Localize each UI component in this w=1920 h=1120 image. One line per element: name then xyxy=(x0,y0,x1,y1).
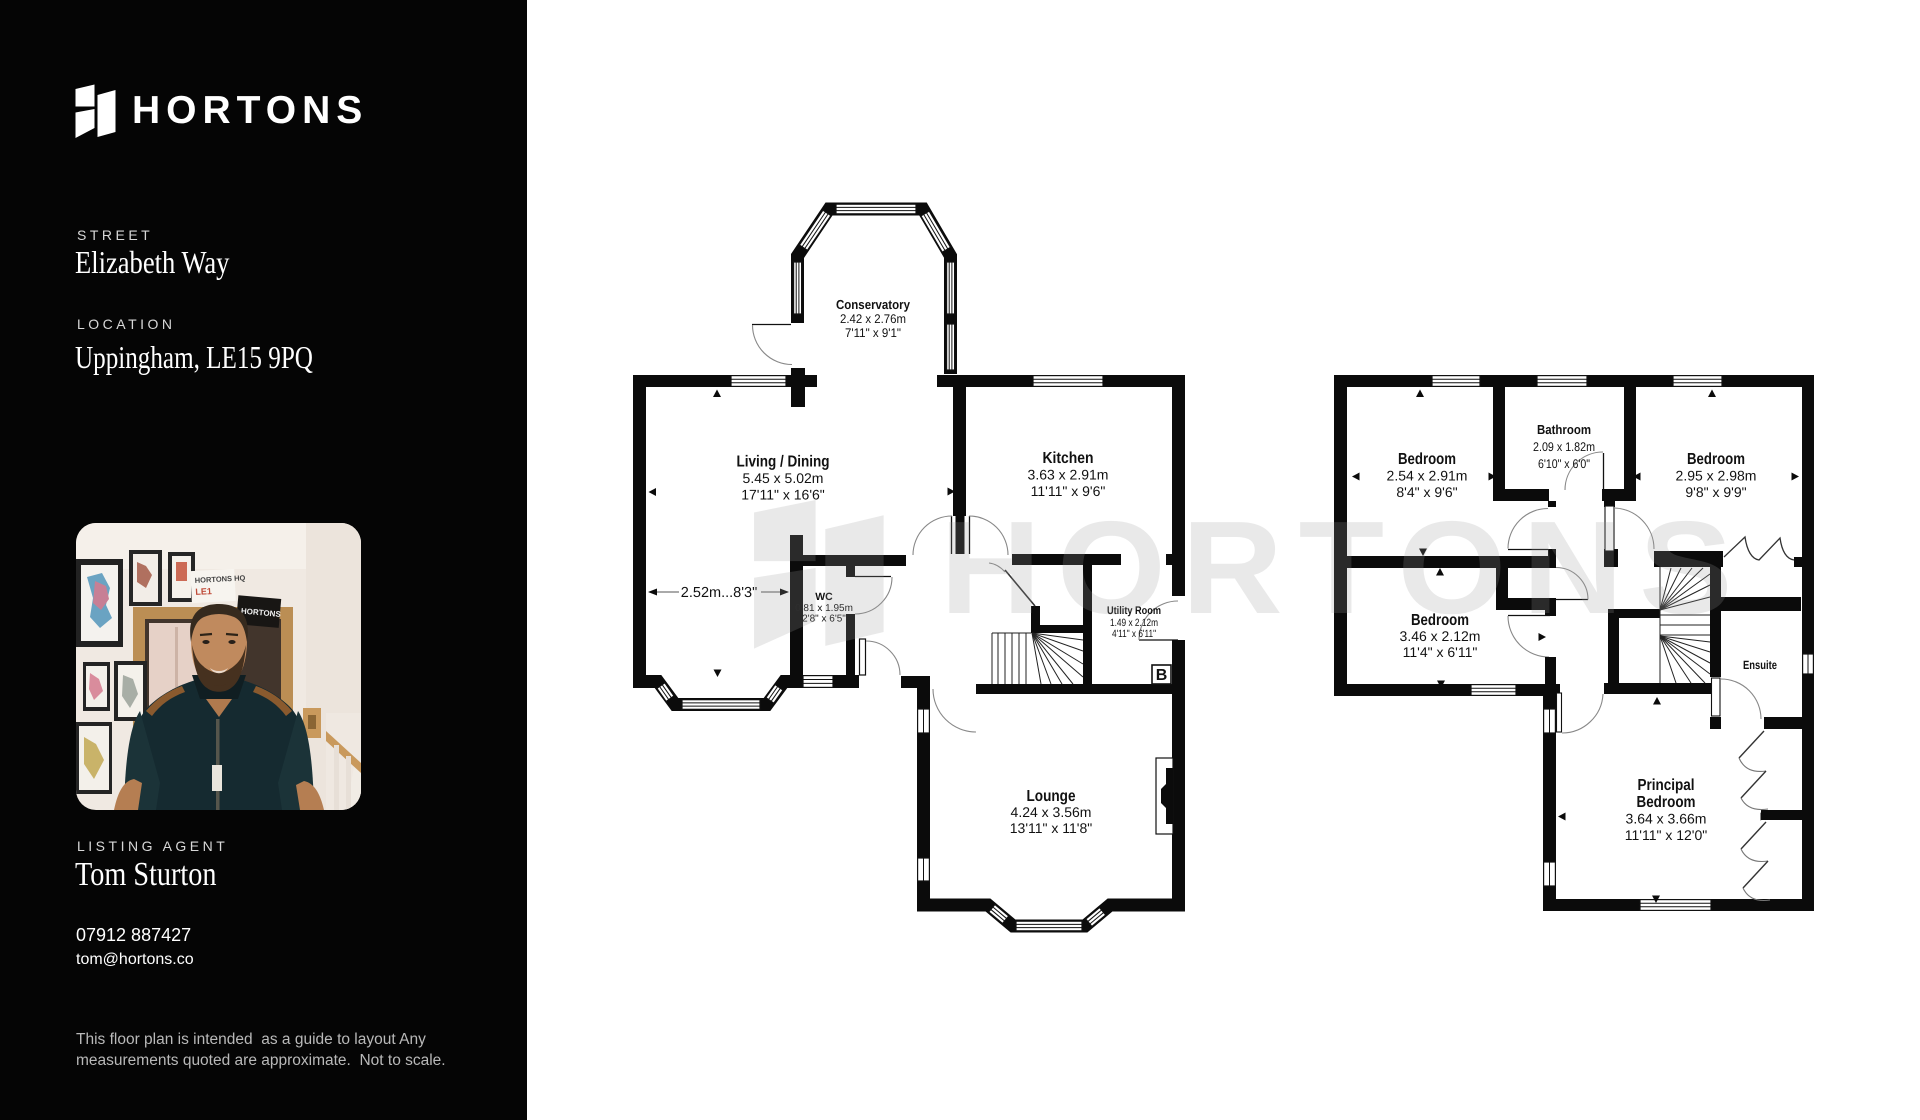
svg-text:HORTONS: HORTONS xyxy=(940,494,1748,641)
svg-text:Bedroom: Bedroom xyxy=(1398,451,1456,468)
svg-text:17'11" x 16'6": 17'11" x 16'6" xyxy=(741,487,825,503)
svg-text:4.24 x 3.56m: 4.24 x 3.56m xyxy=(1011,804,1092,820)
svg-text:2.95 x 2.98m: 2.95 x 2.98m xyxy=(1676,468,1757,484)
svg-text:13'11" x 11'8": 13'11" x 11'8" xyxy=(1010,820,1093,836)
svg-text:LE1: LE1 xyxy=(195,586,212,597)
svg-text:7'11" x 9'1": 7'11" x 9'1" xyxy=(845,326,901,340)
svg-text:Bedroom: Bedroom xyxy=(1687,451,1745,468)
svg-text:Kitchen: Kitchen xyxy=(1043,450,1094,467)
svg-text:3.63 x 2.91m: 3.63 x 2.91m xyxy=(1028,467,1109,483)
svg-text:11'4" x 6'11": 11'4" x 6'11" xyxy=(1403,644,1478,660)
svg-text:Bathroom: Bathroom xyxy=(1537,422,1591,437)
svg-text:2.54 x 2.91m: 2.54 x 2.91m xyxy=(1387,468,1468,484)
svg-text:2.52m...8'3": 2.52m...8'3" xyxy=(681,585,757,601)
svg-text:Ensuite: Ensuite xyxy=(1743,658,1777,672)
svg-text:Conservatory: Conservatory xyxy=(836,297,911,312)
svg-text:3.64 x 3.66m: 3.64 x 3.66m xyxy=(1626,811,1707,827)
svg-text:5.45 x 5.02m: 5.45 x 5.02m xyxy=(743,470,824,486)
svg-text:HORTONS: HORTONS xyxy=(132,89,368,132)
svg-text:B: B xyxy=(1156,667,1168,684)
svg-text:2.42 x 2.76m: 2.42 x 2.76m xyxy=(840,312,906,326)
svg-text:Living / Dining: Living / Dining xyxy=(737,454,830,471)
svg-text:11'11" x 12'0": 11'11" x 12'0" xyxy=(1625,827,1708,843)
svg-text:6'10" x 6'0": 6'10" x 6'0" xyxy=(1538,457,1590,471)
svg-text:Bedroom: Bedroom xyxy=(1637,794,1696,811)
svg-text:Lounge: Lounge xyxy=(1027,788,1076,805)
svg-text:2.09 x 1.82m: 2.09 x 1.82m xyxy=(1533,440,1595,454)
svg-text:Principal: Principal xyxy=(1638,777,1695,794)
